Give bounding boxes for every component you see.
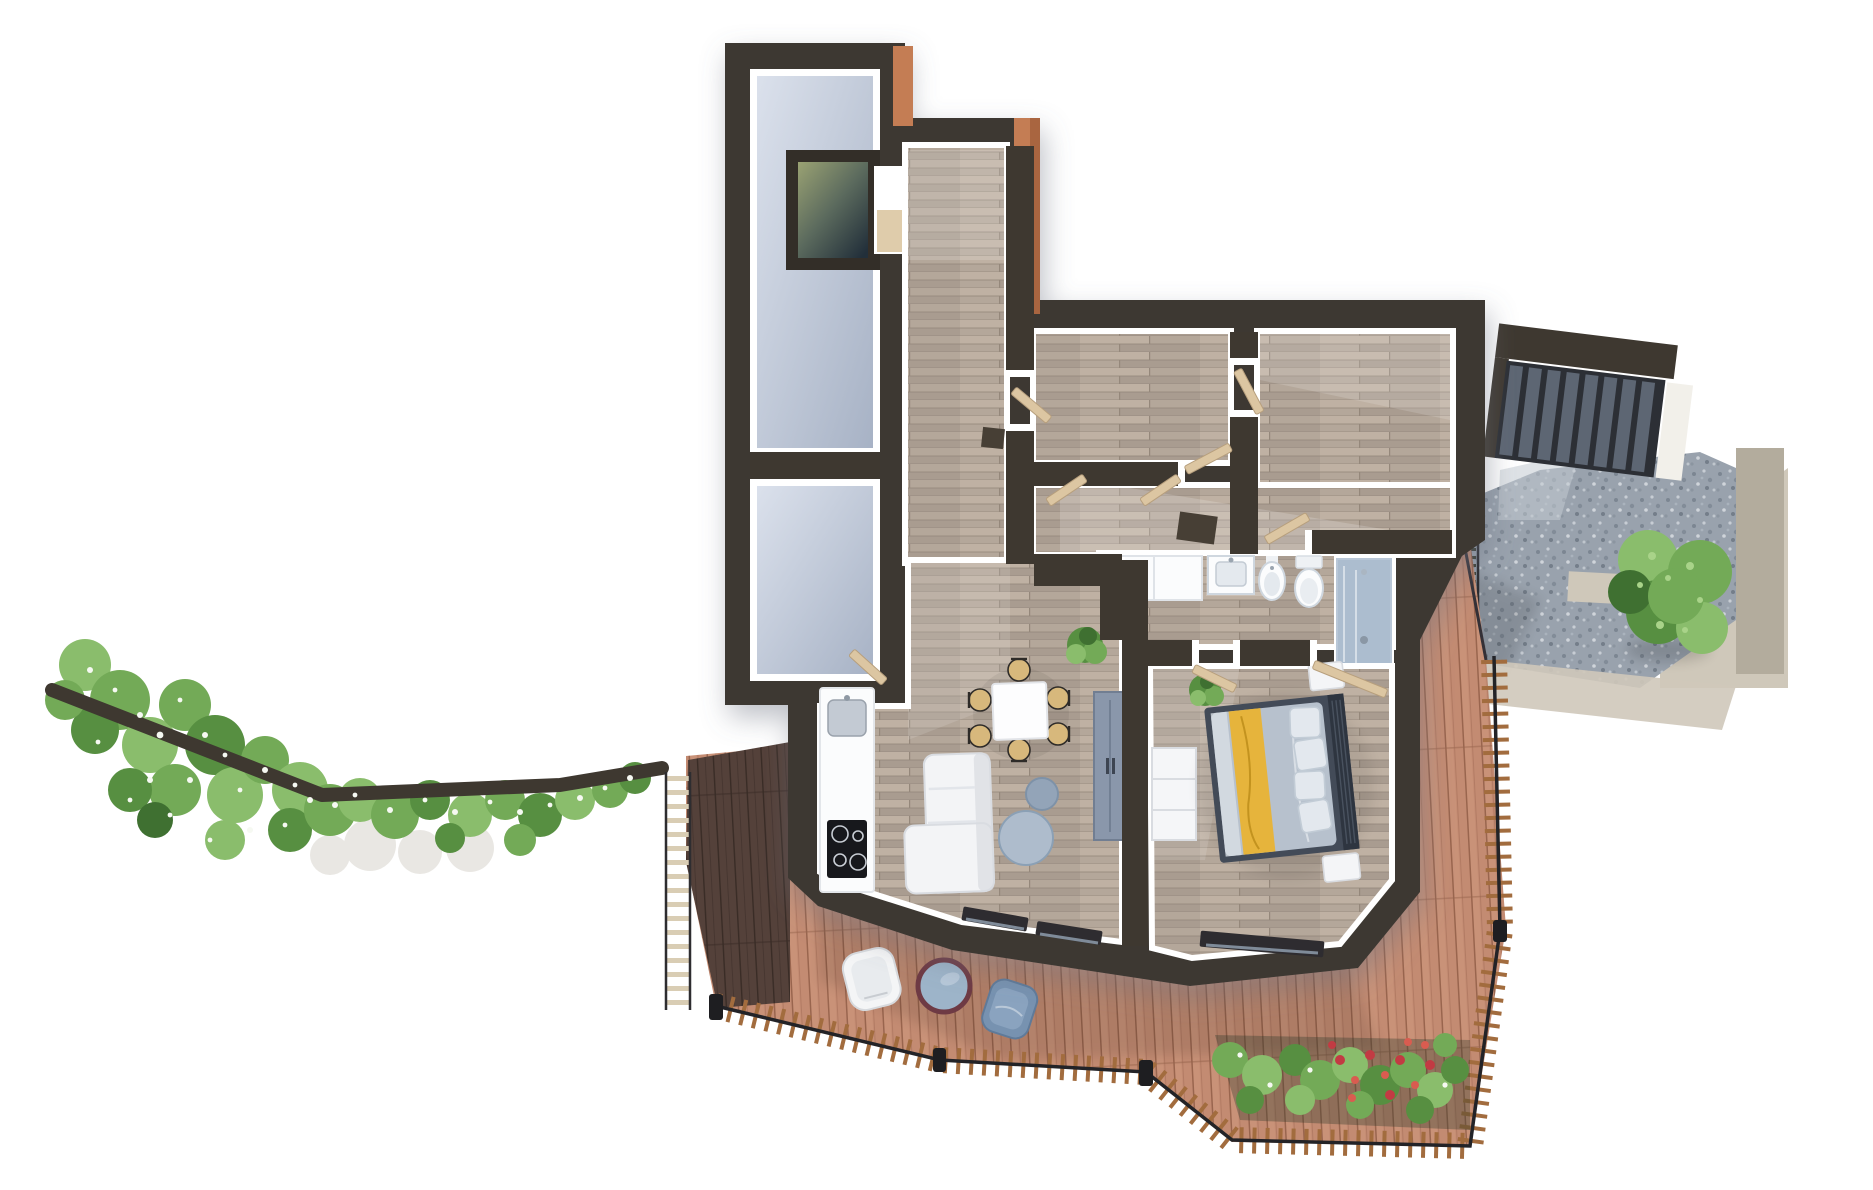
scatter-dot xyxy=(1433,1033,1457,1057)
nightstand xyxy=(1322,853,1361,883)
wardrobe xyxy=(1094,692,1126,840)
scatter-dot xyxy=(96,740,101,745)
scatter-dot xyxy=(1637,582,1643,588)
scatter-dot xyxy=(307,797,313,803)
scatter-dot xyxy=(208,838,213,843)
scatter-dot xyxy=(577,795,583,801)
scatter-dot xyxy=(1442,1082,1447,1087)
dining-table xyxy=(992,682,1048,740)
scatter-dot xyxy=(332,802,338,808)
scatter-dot xyxy=(423,798,428,803)
scatter-dot xyxy=(1285,1085,1315,1115)
scatter-dot xyxy=(353,793,358,798)
exterior-stairs xyxy=(1483,323,1698,480)
floor-mat xyxy=(981,427,1005,449)
hedge-blobs xyxy=(45,639,651,860)
dining-chair xyxy=(1047,687,1069,709)
pillow xyxy=(1298,799,1333,834)
pillow xyxy=(1294,771,1325,801)
scatter-dot xyxy=(283,823,288,828)
kitchen-counter xyxy=(820,688,874,892)
wall-room-a-south xyxy=(1034,462,1182,486)
scatter-dot xyxy=(488,800,493,805)
sunlight-wash xyxy=(908,150,1004,260)
wall-bathroom-west xyxy=(1100,556,1122,640)
wing-divider-wall xyxy=(750,452,880,482)
scatter-dot xyxy=(113,688,118,693)
railing-post xyxy=(933,1048,946,1072)
retaining-wall-vertical xyxy=(1736,448,1784,674)
railing-post xyxy=(709,994,723,1020)
flower-bed xyxy=(1212,1033,1470,1130)
wall-corridor-east-lower xyxy=(1006,430,1034,564)
wall-a-b-upper xyxy=(1230,332,1258,362)
railing-post xyxy=(1493,920,1507,942)
wood-floor xyxy=(1036,334,1228,460)
scatter-dot xyxy=(1335,1055,1345,1065)
scatter-dot xyxy=(1441,1056,1469,1084)
scatter-dot xyxy=(293,783,298,788)
scatter-dot xyxy=(1421,1041,1429,1049)
scatter-dot xyxy=(1348,1094,1356,1102)
wall-bedroom-north-left xyxy=(1148,640,1192,666)
hall-bench xyxy=(1176,511,1218,544)
pillow xyxy=(1290,707,1321,738)
dresser xyxy=(1152,748,1196,840)
scatter-dot xyxy=(1648,552,1656,560)
table-top xyxy=(918,960,970,1012)
side-table-large xyxy=(999,811,1053,865)
scatter-dot xyxy=(137,712,143,718)
dining-chair xyxy=(1047,723,1069,745)
room-storage xyxy=(750,479,880,681)
scatter-dot xyxy=(168,813,173,818)
scatter-dot xyxy=(310,835,350,875)
cooktop xyxy=(827,820,867,878)
scatter-dot xyxy=(1425,1060,1435,1070)
scatter-dot xyxy=(1351,1076,1359,1084)
scatter-dot xyxy=(627,775,633,781)
scatter-dot xyxy=(1381,1071,1389,1079)
concrete-floor xyxy=(757,486,873,674)
corridor xyxy=(902,142,1010,566)
scatter-dot xyxy=(1395,1055,1405,1065)
scatter-dot xyxy=(435,823,465,853)
deck-dark-band xyxy=(686,742,790,1008)
building xyxy=(725,43,1485,986)
wall-a-b-lower xyxy=(1230,414,1258,554)
scatter-dot xyxy=(1406,1096,1434,1124)
courtyard xyxy=(1440,323,1788,730)
scatter-dot xyxy=(517,809,523,815)
scatter-dot xyxy=(1648,568,1704,624)
scatter-dot xyxy=(1697,597,1703,603)
scatter-dot xyxy=(262,767,268,773)
scatter-dot xyxy=(147,777,153,783)
floorplan-svg xyxy=(0,0,1873,1190)
pergola xyxy=(666,772,690,1010)
scatter-dot xyxy=(223,753,228,758)
scatter-dot xyxy=(87,667,93,673)
scatter-dot xyxy=(128,798,133,803)
shower-head xyxy=(1361,569,1367,575)
scatter-dot xyxy=(1411,1081,1419,1089)
wall-room-b-south xyxy=(1312,530,1452,554)
scatter-dot xyxy=(1608,570,1652,614)
bedroom xyxy=(1150,659,1392,958)
shower xyxy=(1336,558,1392,672)
scatter-dot xyxy=(387,807,393,813)
scatter-dot xyxy=(1267,1082,1272,1087)
scatter-dot xyxy=(1404,1038,1412,1046)
dining-chair xyxy=(969,689,991,711)
wall-bedroom-north-mid xyxy=(1240,640,1310,666)
wall-corridor-east-upper xyxy=(1006,146,1034,376)
kitchen-sink xyxy=(828,695,866,736)
left-garden xyxy=(45,639,662,875)
wardrobe-handle xyxy=(1112,758,1115,774)
scatter-dot xyxy=(1686,562,1694,570)
scatter-dot xyxy=(1656,621,1664,629)
washbasin xyxy=(1208,556,1254,594)
landing-step xyxy=(877,210,905,252)
outdoor-table-round xyxy=(918,960,970,1012)
scatter-dot xyxy=(1682,627,1688,633)
scatter-dot xyxy=(1365,1050,1375,1060)
scatter-dot xyxy=(157,732,164,739)
pillow xyxy=(1293,737,1327,771)
dining-chair xyxy=(1008,659,1030,681)
toilet xyxy=(1295,556,1323,607)
wardrobe-handle xyxy=(1106,758,1109,774)
copper-wall-face-top xyxy=(893,46,913,126)
wall-living-east xyxy=(1122,560,1148,946)
scatter-dot xyxy=(504,824,536,856)
scatter-dot xyxy=(178,698,183,703)
scatter-dot xyxy=(1665,575,1671,581)
scatter-dot xyxy=(187,777,193,783)
scatter-dot xyxy=(202,732,208,738)
scatter-dot xyxy=(1385,1090,1395,1100)
scatter-dot xyxy=(603,786,608,791)
scatter-dot xyxy=(247,827,253,833)
skylight-void xyxy=(798,162,868,258)
room-a xyxy=(1030,328,1234,466)
floorplan-render-stage xyxy=(0,0,1873,1190)
scatter-dot xyxy=(1328,1041,1336,1049)
scatter-dot xyxy=(137,802,173,838)
side-table-small xyxy=(1026,778,1058,810)
scatter-dot xyxy=(238,788,243,793)
scatter-dot xyxy=(1236,1086,1264,1114)
shower-drain xyxy=(1360,636,1368,644)
dining-chair xyxy=(1008,739,1030,761)
railing-post xyxy=(1139,1060,1153,1086)
scatter-dot xyxy=(1307,1067,1312,1072)
scatter-dot xyxy=(452,809,458,815)
scatter-dot xyxy=(1237,1052,1242,1057)
dining-chair xyxy=(969,725,991,747)
scatter-dot xyxy=(548,803,553,808)
